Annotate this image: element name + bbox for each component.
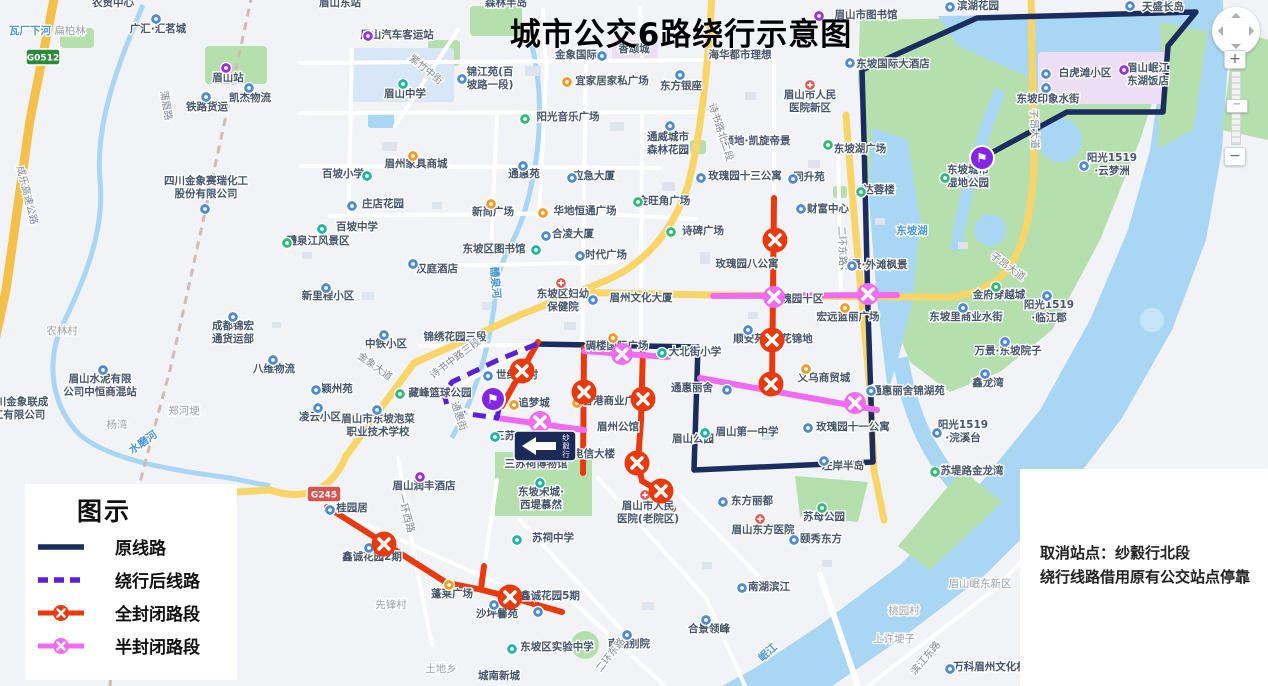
map-label[interactable]: 土地乡 [425, 662, 457, 675]
map-label[interactable]: 通惠丽舍 [671, 381, 713, 394]
notice-line2: 绕行线路借用原有公交站点停靠 [1040, 565, 1268, 589]
blue-poi-icon[interactable] [372, 405, 383, 416]
map-label[interactable]: 财富中心 [806, 202, 849, 215]
closed-full-x-marker [759, 372, 784, 397]
map-label[interactable]: 玫瑰园十一公寓 [816, 420, 890, 433]
map-label[interactable]: 百坡小学 [322, 167, 364, 180]
detour-sign-layer: 纱縠行 [514, 431, 576, 461]
map-label[interactable]: 眉山第一中学 [716, 425, 779, 438]
map-label[interactable]: 二环东路 [835, 226, 849, 266]
legend-item-detour: 绕行后线路 [25, 563, 237, 596]
map-label[interactable]: 四川金象赛瑞化工 [164, 174, 248, 187]
blue-poi-icon[interactable] [743, 325, 754, 336]
metro-poi-icon[interactable] [415, 472, 426, 483]
map-label[interactable]: 玫瑰园八公寓 [716, 257, 779, 270]
map-label[interactable]: 上许埂子 [873, 632, 915, 645]
teal-poi-icon[interactable] [512, 535, 523, 546]
blue-poi-icon[interactable] [803, 423, 814, 434]
map-label[interactable]: 扁柏林 [54, 24, 86, 37]
blue-poi-icon[interactable] [379, 330, 390, 341]
closed-semi-x-marker [529, 411, 551, 433]
map-label[interactable]: 工有限公司 [0, 408, 45, 421]
orange-poi-icon[interactable] [562, 77, 573, 88]
blue-poi-icon[interactable] [1042, 291, 1053, 302]
map-label[interactable]: 通威城市 [647, 130, 689, 143]
hosp-poi-icon[interactable] [805, 80, 816, 91]
closed-full-x-marker [510, 359, 535, 384]
closed-semi-swatch [35, 637, 87, 655]
orange-poi-icon[interactable] [801, 364, 812, 375]
map-label[interactable]: 东坡区图书馆 [463, 242, 526, 255]
map-label[interactable]: 农贸中心 [91, 0, 134, 9]
blue-poi-icon[interactable] [701, 615, 712, 626]
teal-poi-icon[interactable] [317, 224, 328, 235]
blue-poi-icon[interactable] [665, 121, 676, 132]
closed-full-x-marker [631, 387, 656, 412]
blue-poi-icon[interactable] [325, 505, 336, 516]
road-shield: G245 [307, 486, 341, 502]
green-poi-icon[interactable] [520, 114, 531, 125]
map-label[interactable]: 桃园村 [888, 604, 920, 617]
map-label[interactable]: 东坡区实验中学 [520, 640, 594, 653]
teal-poi-icon[interactable] [507, 644, 518, 655]
map-label[interactable]: ·浣溪台 [945, 431, 981, 444]
map-label[interactable]: 锦江苑(百 [467, 65, 514, 78]
teal-poi-icon[interactable] [531, 245, 542, 256]
closed-semi-x-marker [844, 392, 866, 414]
blue-poi-icon[interactable] [866, 386, 877, 397]
blue-poi-icon[interactable] [722, 385, 733, 396]
orange-poi-icon[interactable] [444, 580, 455, 591]
map-label[interactable]: 森林半岛 [484, 0, 527, 9]
zoom-control[interactable]: + − − [1224, 50, 1248, 166]
orange-poi-icon[interactable] [840, 303, 851, 314]
pan-down-icon[interactable] [1231, 44, 1241, 49]
route-terminal-flag-icon: ⚑ [481, 387, 505, 411]
map-label[interactable]: 眉山岷东新区 [949, 577, 1012, 590]
map-label[interactable]: 眉山岷江 [1127, 61, 1169, 74]
blue-poi-icon[interactable] [533, 607, 544, 618]
map-label[interactable]: 电信大楼 [573, 447, 615, 460]
blue-poi-icon[interactable] [321, 283, 332, 294]
map-label[interactable]: 达蓉楼 [863, 183, 895, 196]
map-label[interactable]: ·云梦洲 [1094, 164, 1130, 177]
map-label[interactable]: 西堤慕然 [520, 498, 562, 511]
pan-compass-control[interactable] [1212, 7, 1260, 55]
map-label[interactable]: 通货运部 [212, 332, 254, 345]
closed-semi-x-marker [611, 343, 633, 365]
closed-full-segment [481, 566, 484, 589]
blue-poi-icon[interactable] [788, 174, 799, 185]
map-label[interactable]: 川金象联成 [0, 395, 49, 408]
blue-poi-icon[interactable] [737, 583, 748, 594]
map-label[interactable]: 农林村 [46, 324, 78, 337]
map-label[interactable]: 追梦城 [518, 396, 550, 409]
blue-poi-icon[interactable] [313, 403, 324, 414]
blue-poi-icon[interactable] [1041, 83, 1052, 94]
map-label[interactable]: 滨湖花园 [957, 0, 999, 12]
map-label[interactable]: 公司中恒商混站 [63, 385, 137, 398]
original-route-swatch [35, 538, 87, 556]
blue-poi-icon[interactable] [541, 231, 552, 242]
closed-full-x-marker [372, 532, 397, 557]
orange-poi-icon[interactable] [486, 199, 497, 210]
blue-poi-icon[interactable] [696, 173, 707, 184]
map-label[interactable]: 大北街小学 [669, 345, 722, 358]
map-label[interactable]: 职业技术学校 [347, 425, 410, 438]
notice-line1: 取消站点：纱縠行北段 [1040, 541, 1268, 565]
map-label[interactable]: 眉山东站 [319, 0, 361, 9]
metro-poi-icon[interactable] [1119, 65, 1130, 76]
map-label[interactable]: 醴泉江风景区 [287, 234, 350, 247]
teal-poi-icon[interactable] [657, 348, 668, 359]
green-poi-icon[interactable] [823, 140, 834, 151]
legend-item-closed-full: 全封闭路段 [25, 596, 237, 629]
zoom-in-button[interactable]: + [1224, 50, 1246, 69]
green-poi-icon[interactable] [817, 503, 828, 514]
blue-poi-icon[interactable] [483, 371, 494, 382]
road-shield: G0512 [26, 49, 60, 65]
hosp-poi-icon[interactable] [755, 514, 766, 525]
map-label[interactable]: 水磨河 [126, 427, 160, 457]
blue-poi-icon[interactable] [819, 456, 830, 467]
blue-poi-icon[interactable] [845, 58, 856, 69]
map-label[interactable]: 金旺角广场 [637, 194, 691, 207]
map-label[interactable]: 宜家居家私广场 [575, 74, 649, 87]
map-label[interactable]: 玫瑰园十三公寓 [708, 169, 782, 182]
map-label[interactable]: 蒲眉路 [157, 89, 175, 121]
map-label[interactable]: 股份有限公司 [175, 187, 238, 200]
detour-route-swatch [35, 571, 87, 589]
map-label[interactable]: 苏祠中学 [532, 531, 574, 544]
map-label[interactable]: 庄店花园 [362, 197, 404, 210]
green-poi-icon[interactable] [282, 238, 293, 249]
map-label[interactable]: 领地·凯旋帝景 [724, 134, 791, 147]
closed-full-x-marker [625, 451, 650, 476]
map-screenshot: 眉山东站农贸中心森林半岛滨湖花园天盛长岛眉山市图书馆广汇·汇茗城瓦厂下河扁柏林金… [0, 0, 1268, 686]
legend-title: 图示 [77, 492, 237, 528]
green-poi-icon[interactable] [991, 282, 1002, 293]
map-label[interactable]: 坡路一段) [467, 78, 514, 91]
blue-poi-icon[interactable] [945, 2, 956, 13]
closed-semi-x-marker [857, 283, 879, 305]
map-label[interactable]: 金象大道 [355, 349, 395, 383]
blue-poi-icon[interactable] [244, 83, 255, 94]
map-label[interactable]: 通惠丽舍锦湖苑 [871, 384, 945, 397]
map-label[interactable]: 医院(老院区) [617, 512, 679, 525]
map-label[interactable]: 杨湾 [107, 418, 128, 431]
map-label[interactable]: 阳光音乐广场 [537, 110, 600, 123]
map-label[interactable]: 眉州公馆 [597, 420, 639, 433]
map-label[interactable]: 鑫诚花园5期 [519, 589, 580, 602]
map-label[interactable]: 颐秀东方 [800, 532, 842, 545]
map-label[interactable]: 东坡区妇幼 [537, 287, 590, 300]
blue-poi-icon[interactable] [200, 204, 211, 215]
blue-poi-icon[interactable] [347, 201, 358, 212]
green-poi-icon[interactable] [395, 389, 406, 400]
map-label[interactable]: 一环西路 [395, 492, 418, 534]
legend-label: 原线路 [115, 534, 166, 559]
route-terminal-flag-icon: ⚑ [970, 146, 994, 170]
map-label[interactable]: 时代广场 [585, 248, 627, 261]
map-label[interactable]: 东坡湖广场 [834, 142, 887, 155]
blue-poi-icon[interactable] [201, 92, 212, 103]
blue-poi-icon[interactable] [789, 535, 800, 546]
map-label[interactable]: 苏堤路金龙湾 [941, 464, 1004, 477]
closed-semi-x-marker [763, 286, 785, 308]
map-label[interactable]: 诗碑广场 [682, 224, 724, 237]
pan-up-icon[interactable] [1231, 13, 1241, 18]
sign-street-name: 行 [562, 449, 570, 459]
metro-poi-icon[interactable] [221, 63, 232, 74]
map-label[interactable]: 桂园居 [335, 501, 368, 514]
green-poi-icon[interactable] [940, 173, 951, 184]
blue-poi-icon[interactable] [1079, 161, 1090, 172]
map-label[interactable]: 东方丽都 [731, 494, 773, 507]
blue-poi-icon[interactable] [588, 295, 599, 306]
map-label[interactable]: 天盛长岛 [1142, 0, 1184, 13]
closed-full-x-marker [760, 328, 785, 353]
blue-poi-icon[interactable] [518, 161, 529, 172]
left-turn-sign: 纱縠行 [514, 431, 576, 461]
map-label[interactable]: 南湖滨江 [748, 580, 790, 593]
zoom-slider-handle[interactable]: − [1226, 99, 1248, 113]
pan-left-icon[interactable] [1218, 26, 1223, 36]
road-shields-layer: G0512G245 [26, 49, 341, 502]
map-label[interactable]: 阳光1519 [1087, 151, 1137, 164]
map-label[interactable]: ·临江郡 [1031, 311, 1067, 324]
legend-label: 全封闭路段 [115, 600, 200, 625]
svg-text:⚑: ⚑ [487, 393, 499, 408]
map-label[interactable]: 应急大厦 [573, 169, 615, 182]
legend-item-closed-semi: 半封闭路段 [25, 629, 237, 662]
blue-poi-icon[interactable] [945, 664, 956, 675]
map-label[interactable]: 东坡湖 [896, 224, 928, 237]
blue-poi-icon[interactable] [228, 312, 239, 323]
legend-item-original: 原线路 [25, 530, 237, 563]
blue-poi-icon[interactable] [847, 261, 858, 272]
svg-text:G0512: G0512 [27, 54, 59, 64]
orange-poi-icon[interactable] [509, 400, 520, 411]
teal-poi-icon[interactable] [700, 428, 711, 439]
sign-street-name: 縠 [562, 441, 570, 451]
metro-poi-icon[interactable] [363, 31, 374, 42]
legend-label: 半封闭路段 [115, 633, 200, 658]
closed-full-swatch [35, 604, 87, 622]
map-label[interactable]: 东坡国际大酒店 [856, 57, 930, 70]
blue-poi-icon[interactable] [457, 74, 468, 85]
zoom-out-button[interactable]: − [1224, 147, 1246, 166]
teal-poi-icon[interactable] [362, 171, 373, 182]
blue-poi-icon[interactable] [1000, 337, 1011, 348]
map-label[interactable]: 先锋村 [375, 598, 407, 611]
blue-poi-icon[interactable] [575, 251, 586, 262]
map-label[interactable]: 白虎滩小区 [1059, 66, 1112, 79]
legend-panel: 图示 原线路 绕行后线路 全封闭路段 半封闭路段 [25, 484, 237, 680]
blue-poi-icon[interactable] [622, 630, 633, 641]
orange-poi-icon[interactable] [608, 333, 619, 344]
blue-poi-icon[interactable] [408, 259, 419, 270]
map-label[interactable]: 花锦地 [781, 332, 813, 345]
blue-poi-icon[interactable] [958, 303, 969, 314]
blue-poi-icon[interactable] [932, 428, 943, 439]
closed-full-x-marker [572, 380, 597, 405]
svg-text:G245: G245 [311, 491, 337, 501]
map-label[interactable]: 眉州文化大厦 [610, 291, 673, 304]
blue-poi-icon[interactable] [311, 385, 322, 396]
map-label[interactable]: 颖州苑 [321, 382, 353, 395]
orange-poi-icon[interactable] [408, 151, 419, 162]
map-label[interactable]: 眉山东方医院 [732, 523, 795, 536]
map-label[interactable]: 医院新区 [789, 101, 831, 114]
map-label[interactable]: 合凌大厦 [551, 227, 594, 240]
map-label[interactable]: 藏峰篮球公园 [409, 386, 472, 399]
closed-full-x-marker [649, 479, 674, 504]
closed-full-x-marker [498, 585, 523, 610]
blue-poi-icon[interactable] [718, 497, 729, 508]
svg-text:⚑: ⚑ [976, 152, 988, 167]
closed-full-x-marker [763, 228, 788, 253]
blue-poi-icon[interactable] [1041, 69, 1052, 80]
blue-poi-icon[interactable] [489, 600, 500, 611]
orange-poi-icon[interactable] [538, 208, 549, 219]
green-poi-icon[interactable] [856, 187, 867, 198]
green-poi-icon[interactable] [666, 227, 677, 238]
map-label[interactable]: 诗书路北二段 [706, 101, 737, 162]
map-label[interactable]: 阳光1519 [938, 418, 988, 431]
blue-poi-icon[interactable] [1125, 1, 1136, 12]
blue-poi-icon[interactable] [151, 14, 162, 25]
teal-poi-icon[interactable] [398, 79, 409, 90]
blue-poi-icon[interactable] [98, 365, 109, 376]
map-label[interactable]: 瓦厂下河 [9, 25, 51, 37]
map-label[interactable]: 湿地公园 [947, 176, 989, 189]
map-label[interactable]: 东坡印象水街 [1017, 92, 1080, 105]
pan-right-icon[interactable] [1249, 26, 1254, 36]
map-label[interactable]: 汉庭酒店 [416, 262, 458, 275]
map-label[interactable]: 森林花园 [646, 143, 689, 156]
map-label[interactable]: 保健院 [546, 300, 579, 313]
map-label[interactable]: 百坡中学 [336, 220, 378, 233]
map-label[interactable]: 华地恒通广场 [554, 204, 617, 217]
map-label[interactable]: 郑河埂 [168, 404, 200, 417]
map-label[interactable]: 城南新城 [478, 669, 520, 682]
hosp-poi-icon[interactable] [556, 278, 567, 289]
notice-panel: 取消站点：纱縠行北段 绕行线路借用原有公交站点停靠 [1020, 469, 1268, 686]
legend-label: 绕行后线路 [115, 567, 200, 592]
blue-poi-icon[interactable] [796, 204, 807, 215]
blue-poi-icon[interactable] [675, 70, 686, 81]
teal-poi-icon[interactable] [490, 432, 501, 443]
page-title: 城市公交6路绕行示意图 [510, 9, 853, 54]
teal-poi-icon[interactable] [535, 478, 546, 489]
blue-poi-icon[interactable] [268, 355, 279, 366]
map-label[interactable]: 东湖饭店 [1127, 74, 1169, 87]
map-label[interactable]: 万科眉州文化村 [952, 660, 1027, 673]
blue-poi-icon[interactable] [980, 369, 991, 380]
green-poi-icon[interactable] [930, 467, 941, 478]
green-poi-icon[interactable] [633, 197, 644, 208]
blue-poi-icon[interactable] [567, 173, 578, 184]
